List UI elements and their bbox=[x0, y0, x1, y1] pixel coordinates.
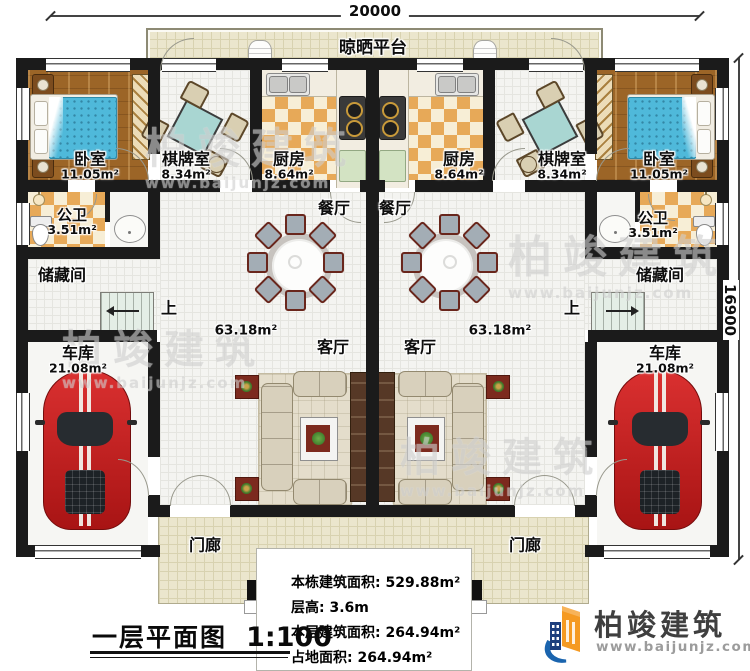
window bbox=[715, 88, 729, 140]
dimension-right-value: 16900 bbox=[723, 280, 739, 340]
burner-icon bbox=[382, 102, 399, 119]
sofa-main bbox=[261, 383, 293, 491]
room-label-bedroom-left: 卧室11.05m² bbox=[61, 151, 119, 182]
car-engine bbox=[640, 470, 680, 514]
sink-bowl bbox=[269, 76, 288, 93]
wall bbox=[379, 180, 385, 192]
lamp-icon bbox=[696, 79, 708, 91]
pillow bbox=[34, 101, 48, 126]
burner-icon bbox=[382, 120, 399, 137]
room-label-porch-left: 门廊 bbox=[189, 536, 221, 553]
door-arc bbox=[551, 38, 585, 71]
window bbox=[16, 203, 30, 245]
window bbox=[417, 58, 463, 72]
chair bbox=[439, 290, 460, 311]
car bbox=[608, 368, 710, 532]
wash-basin bbox=[114, 215, 146, 243]
wall bbox=[585, 70, 597, 154]
plant-icon bbox=[493, 381, 504, 392]
watermark: 柏竣建筑www.baijunjz.com bbox=[400, 438, 604, 500]
room-label-storage-left: 储藏间 bbox=[38, 266, 86, 283]
room-label-dining-left: 餐厅 bbox=[318, 199, 350, 216]
basin-drain bbox=[128, 231, 131, 234]
chair bbox=[323, 252, 344, 273]
plant-icon bbox=[312, 432, 325, 445]
stove bbox=[379, 96, 406, 140]
plant-stand bbox=[486, 375, 510, 399]
burner-icon bbox=[346, 102, 363, 119]
wall bbox=[230, 505, 366, 517]
brand-logo-icon bbox=[538, 602, 590, 664]
kitchen-sink bbox=[435, 73, 479, 96]
brand-name: 柏竣建筑 bbox=[594, 602, 726, 644]
chair bbox=[285, 290, 306, 311]
sofa-side bbox=[293, 479, 347, 505]
brand-url: www.baijunjz.com bbox=[596, 639, 750, 655]
wall bbox=[148, 495, 160, 517]
stairs-up-label-right: 上 bbox=[564, 299, 580, 316]
room-label-kitchen-right: 厨房8.64m² bbox=[434, 151, 483, 182]
sofa-side bbox=[293, 371, 347, 397]
sink-bowl bbox=[457, 76, 476, 93]
wall bbox=[16, 247, 160, 259]
car-mirror-icon bbox=[700, 420, 710, 425]
stair-arrowhead-icon bbox=[106, 306, 114, 316]
room-label-living-right: 客厅 bbox=[404, 338, 436, 355]
car bbox=[35, 368, 137, 532]
stair-arrowhead-icon bbox=[631, 306, 639, 316]
nightstand bbox=[691, 74, 713, 96]
living-area-value-right: 63.18m² bbox=[469, 324, 532, 339]
wall bbox=[677, 180, 729, 192]
dimension-top-value: 20000 bbox=[341, 3, 409, 19]
stair-arrow bbox=[113, 310, 139, 312]
brand-logo: 柏竣建筑 www.baijunjz.com bbox=[538, 602, 743, 664]
window bbox=[16, 88, 30, 140]
wall bbox=[16, 180, 68, 192]
blanket-fold bbox=[682, 97, 696, 157]
wardrobe bbox=[595, 74, 613, 160]
wall bbox=[379, 505, 515, 517]
car-mirror-icon bbox=[127, 420, 137, 425]
staircase bbox=[100, 292, 154, 332]
window bbox=[46, 58, 130, 72]
stair-arrow bbox=[606, 310, 632, 312]
plant-icon bbox=[241, 483, 252, 494]
car-windshield bbox=[632, 412, 688, 446]
room-label-chess-left: 棋牌室8.34m² bbox=[161, 151, 210, 182]
wall bbox=[483, 70, 495, 180]
lamp-icon bbox=[696, 161, 708, 173]
room-label-garage-left: 车库21.08m² bbox=[49, 345, 107, 376]
platform-label: 晾晒平台 bbox=[339, 39, 407, 57]
sink-bowl bbox=[289, 76, 307, 93]
room-label-bath-left: 公卫3.51m² bbox=[47, 207, 96, 237]
living-area-value-left: 63.18m² bbox=[215, 324, 278, 339]
coffee-table bbox=[300, 417, 338, 461]
chair bbox=[477, 252, 498, 273]
wall bbox=[588, 330, 729, 342]
tv-cabinet bbox=[377, 372, 395, 502]
pendant-light-icon bbox=[700, 194, 712, 206]
room-label-bath-right: 公卫3.51m² bbox=[628, 210, 677, 240]
room-label-kitchen-left: 厨房8.64m² bbox=[264, 151, 313, 182]
floorplan-page: { "dimensions": { "top": "20000", "right… bbox=[0, 0, 750, 669]
watermark: 柏竣建筑www.baijunjz.com bbox=[508, 236, 728, 302]
plan-title: 一层平面图 1:100 bbox=[92, 618, 332, 654]
party-wall bbox=[366, 58, 379, 517]
chair bbox=[247, 252, 268, 273]
fridge bbox=[379, 150, 406, 182]
lamp-icon bbox=[37, 161, 49, 173]
pillow bbox=[697, 129, 711, 154]
window bbox=[715, 393, 729, 451]
room-label-living-left: 客厅 bbox=[317, 338, 349, 355]
title-underline bbox=[90, 651, 290, 654]
window bbox=[615, 58, 699, 72]
wall bbox=[105, 192, 110, 222]
room-label-chess-right: 棋牌室8.34m² bbox=[537, 151, 586, 182]
car-engine bbox=[65, 470, 105, 514]
room-label-porch-right: 门廊 bbox=[509, 536, 541, 553]
wall bbox=[525, 180, 650, 192]
plant-stand bbox=[235, 477, 259, 501]
blanket-fold bbox=[49, 97, 63, 157]
door-arc bbox=[160, 38, 194, 71]
room-label-dining-right: 餐厅 bbox=[379, 199, 411, 216]
room-label-bedroom-right: 卧室11.05m² bbox=[630, 151, 688, 182]
garage-door bbox=[604, 545, 710, 559]
room-label-storage-right: 储藏间 bbox=[636, 266, 684, 283]
title-underline bbox=[90, 657, 288, 659]
kitchen-sink bbox=[266, 73, 310, 96]
lamp-icon bbox=[37, 79, 49, 91]
car-mirror-icon bbox=[608, 420, 618, 425]
sink-bowl bbox=[438, 76, 456, 93]
wall bbox=[148, 192, 160, 247]
sofa-side bbox=[398, 371, 452, 397]
stairs-up-label-left: 上 bbox=[161, 299, 177, 316]
wall bbox=[160, 505, 170, 517]
window bbox=[282, 58, 328, 72]
pendant-light-icon bbox=[33, 194, 45, 206]
dining-table-center bbox=[288, 255, 302, 269]
car-mirror-icon bbox=[35, 420, 45, 425]
stat-total-area: 本栋建筑面积: 529.88m² bbox=[291, 571, 471, 596]
chair bbox=[401, 252, 422, 273]
wall bbox=[575, 505, 585, 517]
dining-table-center bbox=[443, 255, 457, 269]
pillow bbox=[34, 129, 48, 154]
pillow bbox=[697, 101, 711, 126]
window bbox=[16, 393, 30, 451]
wall bbox=[415, 180, 493, 192]
car-windshield bbox=[57, 412, 113, 446]
chair bbox=[285, 214, 306, 235]
nightstand bbox=[32, 74, 54, 96]
room-label-garage-right: 车库21.08m² bbox=[636, 345, 694, 376]
chair bbox=[439, 214, 460, 235]
garage-door bbox=[35, 545, 141, 559]
